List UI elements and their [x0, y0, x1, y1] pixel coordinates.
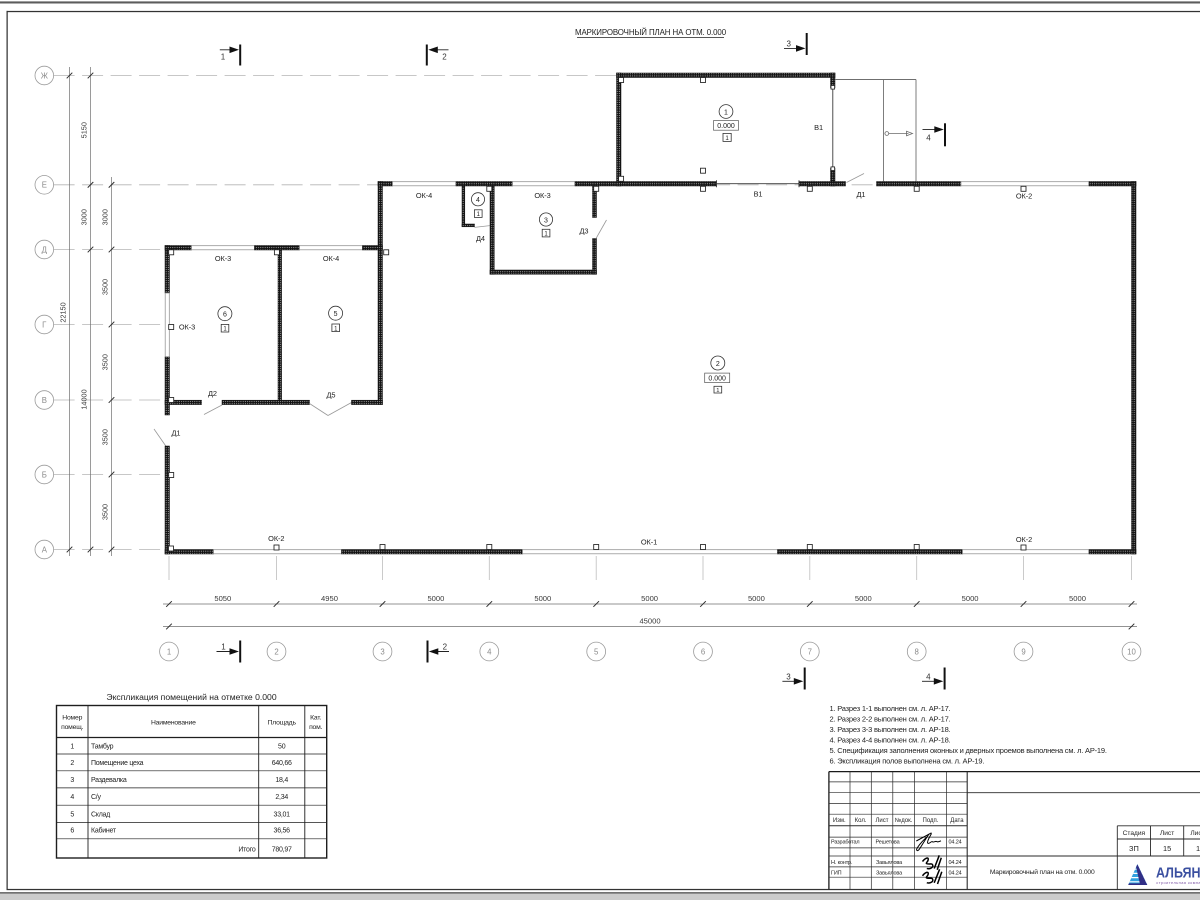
- svg-text:3: 3: [544, 217, 548, 224]
- svg-text:Д1: Д1: [857, 190, 866, 199]
- svg-text:5. Спецификация заполнения око: 5. Спецификация заполнения оконных и две…: [830, 746, 1107, 755]
- svg-text:2: 2: [443, 643, 448, 652]
- svg-text:1: 1: [725, 135, 729, 142]
- svg-text:45000: 45000: [639, 616, 660, 625]
- svg-text:Д: Д: [42, 245, 48, 254]
- svg-text:5000: 5000: [855, 594, 872, 603]
- svg-text:1. Разрез 1-1 выполнен см. л.: 1. Разрез 1-1 выполнен см. л. АР-17.: [830, 704, 951, 713]
- svg-text:Н. контр.: Н. контр.: [831, 860, 853, 866]
- svg-text:ГИП: ГИП: [831, 871, 842, 877]
- svg-text:5150: 5150: [80, 122, 89, 138]
- svg-text:МАРКИРОВОЧНЫЙ ПЛАН НА ОТМ. 0.0: МАРКИРОВОЧНЫЙ ПЛАН НА ОТМ. 0.000: [575, 28, 727, 37]
- svg-text:18,4: 18,4: [275, 777, 288, 784]
- svg-text:Б: Б: [42, 470, 47, 479]
- svg-text:5050: 5050: [214, 594, 231, 603]
- svg-text:1: 1: [1196, 844, 1200, 853]
- svg-text:4. Разрез 4-4 выполнен см. л.: 4. Разрез 4-4 выполнен см. л. АР-18.: [830, 736, 951, 745]
- svg-text:4: 4: [70, 794, 74, 801]
- svg-text:4950: 4950: [321, 594, 338, 603]
- svg-text:ОК-3: ОК-3: [534, 191, 550, 200]
- svg-text:АЛЬЯНС: АЛЬЯНС: [1156, 865, 1200, 881]
- svg-text:В: В: [42, 396, 47, 405]
- svg-text:36,56: 36,56: [274, 827, 291, 834]
- svg-text:2. Разрез 2-2 выполнен см. л.: 2. Разрез 2-2 выполнен см. л. АР-17.: [830, 715, 951, 724]
- svg-text:Кат.: Кат.: [310, 715, 321, 722]
- svg-text:5000: 5000: [962, 594, 979, 603]
- svg-text:В1: В1: [814, 123, 823, 132]
- svg-text:Площадь: Площадь: [268, 720, 297, 727]
- svg-text:640,66: 640,66: [272, 760, 292, 767]
- svg-text:Кол.: Кол.: [855, 818, 867, 824]
- svg-text:50: 50: [278, 743, 286, 750]
- svg-text:Лист: Лист: [875, 818, 888, 824]
- svg-text:ОК-2: ОК-2: [1016, 535, 1032, 544]
- svg-text:Разработал: Разработал: [831, 840, 859, 846]
- svg-text:3000: 3000: [80, 209, 89, 225]
- svg-text:0.000: 0.000: [717, 123, 735, 130]
- svg-text:5: 5: [334, 311, 338, 318]
- svg-text:ОК-3: ОК-3: [179, 322, 195, 331]
- svg-text:5000: 5000: [1069, 594, 1086, 603]
- svg-text:2: 2: [716, 361, 720, 368]
- svg-text:Д3: Д3: [580, 227, 589, 236]
- svg-text:Маркировочный план на отм. 0.0: Маркировочный план на отм. 0.000: [990, 868, 1095, 876]
- svg-text:7: 7: [808, 647, 812, 656]
- svg-text:Изм.: Изм.: [833, 818, 846, 824]
- svg-text:3500: 3500: [101, 354, 110, 370]
- svg-text:Склад: Склад: [91, 811, 110, 818]
- svg-text:Д2: Д2: [208, 389, 217, 398]
- svg-text:Завьялова: Завьялова: [876, 871, 903, 877]
- svg-text:Наименование: Наименование: [151, 720, 196, 727]
- svg-text:ОК-2: ОК-2: [1016, 192, 1032, 201]
- svg-text:22150: 22150: [59, 302, 68, 322]
- svg-text:2,34: 2,34: [275, 794, 288, 801]
- svg-text:0.000: 0.000: [708, 376, 726, 383]
- svg-text:3500: 3500: [101, 504, 110, 520]
- svg-text:Завьялова: Завьялова: [876, 860, 903, 866]
- svg-text:ОК-3: ОК-3: [215, 254, 231, 263]
- svg-text:ОК-1: ОК-1: [641, 537, 657, 546]
- svg-text:6: 6: [223, 312, 227, 319]
- svg-text:04.24: 04.24: [949, 871, 962, 877]
- svg-text:Раздевалка: Раздевалка: [91, 777, 127, 784]
- svg-text:6. Экспликация полов выполнена: 6. Экспликация полов выполнена см. л. АР…: [830, 757, 985, 766]
- svg-text:3500: 3500: [101, 429, 110, 445]
- svg-text:3: 3: [786, 672, 791, 681]
- svg-text:1: 1: [70, 743, 74, 750]
- svg-text:3. Разрез 3-3 выполнен см. л.: 3. Разрез 3-3 выполнен см. л. АР-18.: [830, 725, 951, 734]
- svg-text:6: 6: [70, 827, 74, 834]
- svg-text:04.24: 04.24: [949, 860, 962, 866]
- svg-text:5: 5: [70, 811, 74, 818]
- svg-text:Лист: Лист: [1160, 830, 1174, 837]
- svg-text:5000: 5000: [534, 594, 551, 603]
- svg-text:780,97: 780,97: [272, 847, 292, 854]
- svg-text:пом.: пом.: [309, 724, 323, 731]
- svg-text:В1: В1: [754, 190, 763, 199]
- svg-text:14000: 14000: [80, 389, 89, 409]
- svg-text:2: 2: [274, 647, 278, 656]
- svg-text:5000: 5000: [641, 594, 658, 603]
- svg-text:1: 1: [716, 388, 719, 394]
- svg-text:Подп.: Подп.: [923, 818, 939, 824]
- svg-text:5000: 5000: [427, 594, 444, 603]
- svg-text:1: 1: [167, 647, 171, 656]
- svg-text:ОК-4: ОК-4: [416, 191, 432, 200]
- svg-text:2: 2: [70, 760, 74, 767]
- svg-text:3: 3: [786, 39, 791, 48]
- svg-text:Экспликация помещений на отмет: Экспликация помещений на отметке 0.000: [106, 692, 276, 702]
- svg-text:4: 4: [487, 647, 492, 656]
- svg-text:Помещение цеха: Помещение цеха: [91, 760, 144, 767]
- svg-text:ЗП: ЗП: [1129, 844, 1139, 853]
- svg-text:строительная компания: строительная компания: [1156, 880, 1200, 885]
- svg-text:Е: Е: [42, 181, 47, 190]
- svg-text:Номер: Номер: [62, 715, 82, 722]
- svg-text:3: 3: [70, 777, 74, 784]
- svg-text:Д5: Д5: [327, 390, 336, 399]
- svg-text:Ж: Ж: [41, 71, 49, 80]
- svg-text:6: 6: [701, 647, 705, 656]
- svg-text:5000: 5000: [748, 594, 765, 603]
- svg-text:3000: 3000: [101, 209, 110, 225]
- svg-text:Лис: Лис: [1190, 830, 1200, 837]
- svg-text:8: 8: [915, 647, 919, 656]
- svg-text:ОК-2: ОК-2: [268, 534, 284, 543]
- svg-text:3500: 3500: [101, 279, 110, 295]
- svg-text:ОК-4: ОК-4: [323, 254, 339, 263]
- svg-text:Итого: Итого: [238, 847, 255, 854]
- svg-text:1: 1: [724, 109, 728, 116]
- svg-text:Кабинет: Кабинет: [91, 826, 117, 834]
- svg-text:5: 5: [594, 647, 599, 656]
- svg-text:Дата: Дата: [950, 818, 964, 824]
- svg-text:4: 4: [476, 197, 480, 204]
- svg-text:Д1: Д1: [172, 429, 181, 438]
- svg-text:9: 9: [1021, 647, 1025, 656]
- svg-text:1: 1: [221, 52, 226, 61]
- svg-text:Решетова: Решетова: [876, 840, 901, 846]
- svg-text:1: 1: [221, 643, 226, 652]
- svg-text:Стадия: Стадия: [1123, 830, 1146, 837]
- svg-text:4: 4: [926, 672, 931, 681]
- svg-text:А: А: [42, 545, 48, 554]
- svg-text:15: 15: [1163, 844, 1171, 853]
- svg-text:помещ.: помещ.: [61, 724, 84, 731]
- svg-text:04.24: 04.24: [949, 840, 962, 846]
- svg-text:2: 2: [442, 52, 447, 61]
- svg-text:4: 4: [926, 134, 931, 143]
- svg-text:С/у: С/у: [91, 794, 102, 801]
- svg-text:№док.: №док.: [895, 817, 913, 824]
- svg-text:3: 3: [380, 647, 384, 656]
- svg-text:Тамбур: Тамбур: [91, 742, 114, 750]
- svg-text:Д4: Д4: [476, 234, 485, 243]
- svg-text:10: 10: [1127, 647, 1136, 656]
- svg-text:33,01: 33,01: [274, 811, 291, 818]
